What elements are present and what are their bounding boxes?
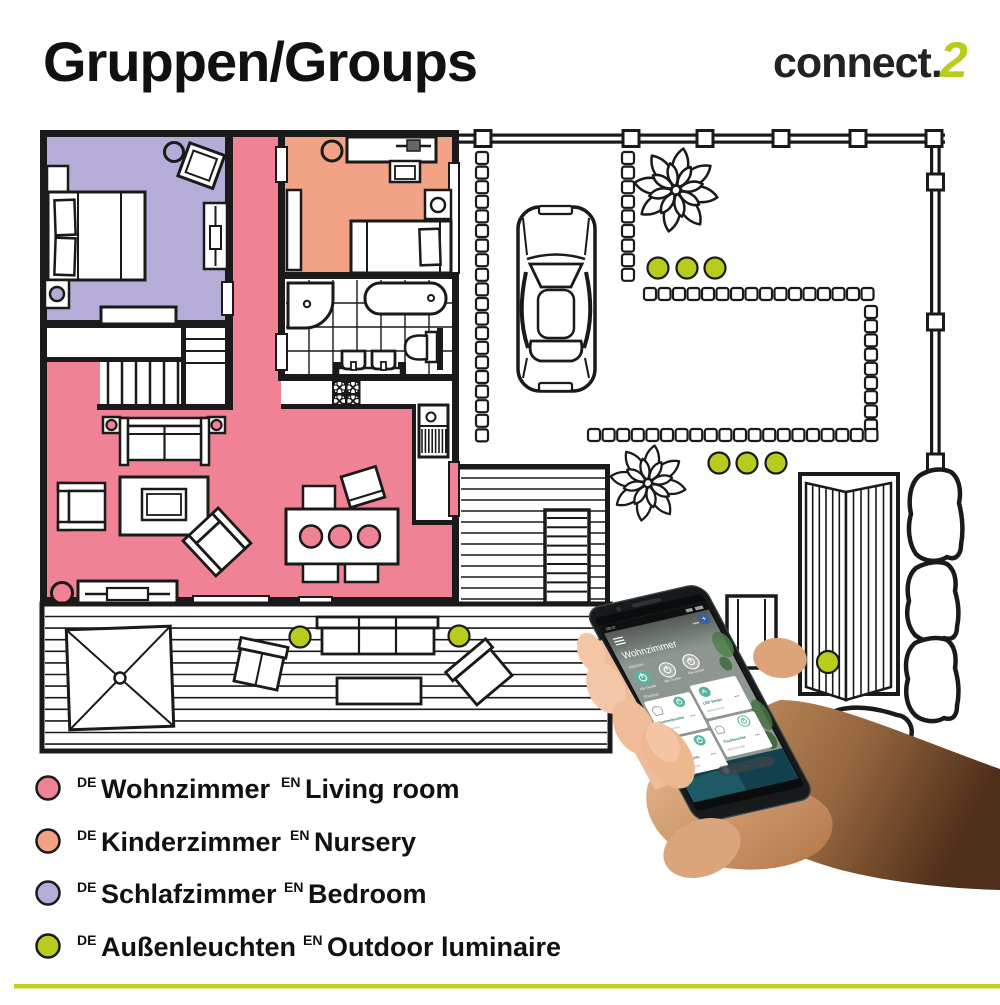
svg-text:Bedroom: Bedroom — [308, 879, 427, 909]
svg-text:DE: DE — [77, 879, 96, 895]
svg-text:DE: DE — [77, 932, 96, 948]
svg-text:2: 2 — [939, 32, 968, 88]
svg-text:EN: EN — [303, 932, 322, 948]
svg-text:connect.: connect. — [773, 39, 942, 87]
svg-text:Outdoor luminaire: Outdoor luminaire — [327, 932, 561, 962]
svg-text:EN: EN — [284, 879, 303, 895]
svg-text:Wohnzimmer: Wohnzimmer — [101, 774, 271, 804]
svg-text:Außenleuchten: Außenleuchten — [101, 932, 296, 962]
svg-text:Living room: Living room — [305, 774, 460, 804]
svg-text:EN: EN — [281, 774, 300, 790]
svg-text:Kinderzimmer: Kinderzimmer — [101, 827, 282, 857]
svg-text:DE: DE — [77, 774, 96, 790]
svg-text:DE: DE — [77, 827, 96, 843]
svg-text:EN: EN — [290, 827, 309, 843]
svg-text:Gruppen/Groups: Gruppen/Groups — [43, 30, 477, 93]
svg-text:Nursery: Nursery — [314, 827, 416, 857]
svg-text:Schlafzimmer: Schlafzimmer — [101, 879, 277, 909]
